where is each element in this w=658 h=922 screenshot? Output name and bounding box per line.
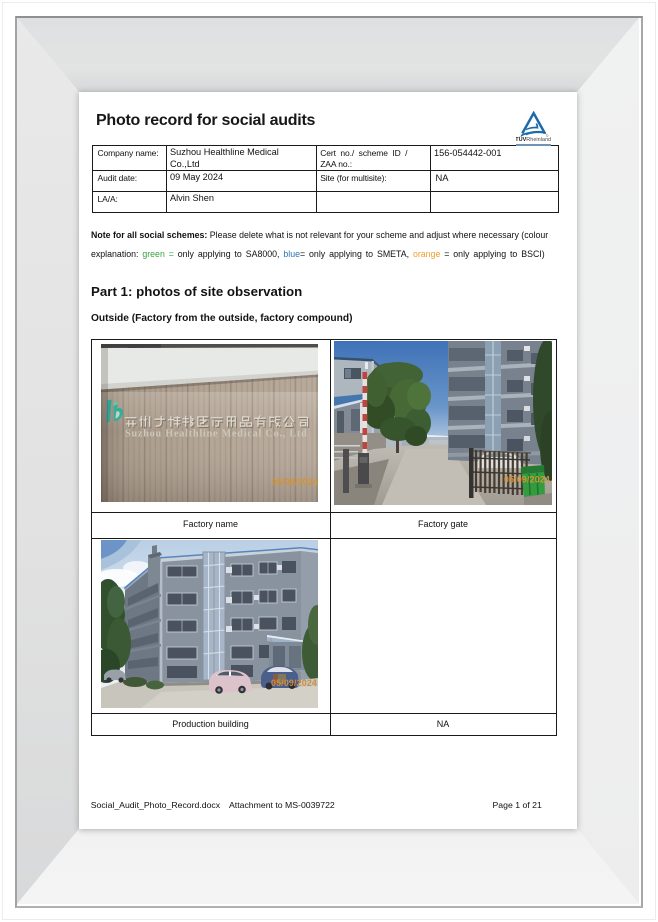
svg-text:TÜVRheinland: TÜVRheinland bbox=[516, 136, 551, 143]
svg-text:05/09/2024: 05/09/2024 bbox=[504, 474, 550, 484]
svg-text:Suzhou Healthline Medical Co.,: Suzhou Healthline Medical Co., Ltd bbox=[125, 429, 307, 440]
svg-text:05/09/2024: 05/09/2024 bbox=[272, 477, 318, 487]
svg-text:05/09/2024: 05/09/2024 bbox=[271, 678, 317, 688]
